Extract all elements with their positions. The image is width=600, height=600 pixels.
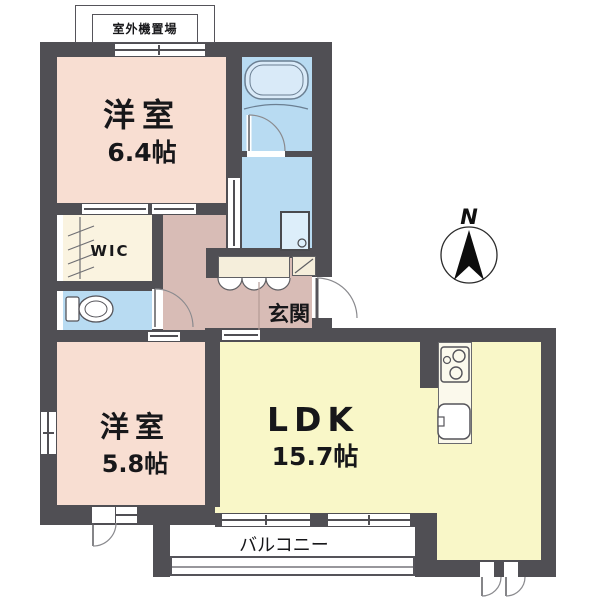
shoe-cabinet [292,256,316,276]
balcony-window-1 [222,514,310,526]
bedroom2-low-window [116,507,137,523]
washroom-floor [240,153,312,250]
wall-kitchen-stub [420,342,438,388]
compass: N [441,205,497,283]
ldk-size-label: 15.7帖 [240,444,390,469]
wall-balcony-left [153,505,170,577]
balcony-railing [170,556,415,576]
outdoor-unit-inner: 室外機置場 [92,14,198,43]
wall-right-lower [541,328,556,577]
entrance-closet [218,256,290,278]
toilet-floor [63,291,153,330]
service-hatch-2 [504,562,518,577]
bedroom1-size-label: 6.4帖 [77,140,207,165]
wall-hall-bedroom2 [40,330,220,342]
toilet-door-opening [152,289,163,329]
outdoor-unit-label: 室外機置場 [112,23,177,35]
wic-sliding-door [82,204,148,214]
service-hatch-1 [480,562,494,577]
service-hatch-doors [482,577,525,596]
wall-bedroom2-ldk [205,342,220,507]
bedroom2-size-label: 5.8帖 [70,452,200,476]
wall-wic-bottom [57,281,153,291]
ldk-name-label: LDK [243,403,383,436]
bedroom2-side-window [41,412,56,454]
bathroom-floor [240,57,312,153]
bedroom2-terrace-door [93,523,116,546]
bedroom2-name-label: 洋室 [70,413,200,442]
bedroom2-terrace-door-opening [92,507,115,523]
ldk-floor-lower [437,515,543,562]
bedroom1-window [115,44,205,56]
bedroom1-door [152,204,196,214]
washroom-pocket-door [228,178,240,248]
kitchen-counter [438,342,472,444]
bath-door-opening [247,151,285,157]
balcony-label: バルコニー [214,537,354,555]
compass-n-label: N [460,205,478,229]
ldk-door [222,330,260,340]
entrance-label: 玄関 [262,304,316,325]
wic-label: WIC [80,244,140,259]
floor-plan: 室外機置場 [0,0,600,600]
north-arrow-icon [454,230,484,280]
bedroom1-name-label: 洋室 [77,99,207,131]
balcony-window-2 [328,514,410,526]
bedroom2-door [148,332,180,341]
